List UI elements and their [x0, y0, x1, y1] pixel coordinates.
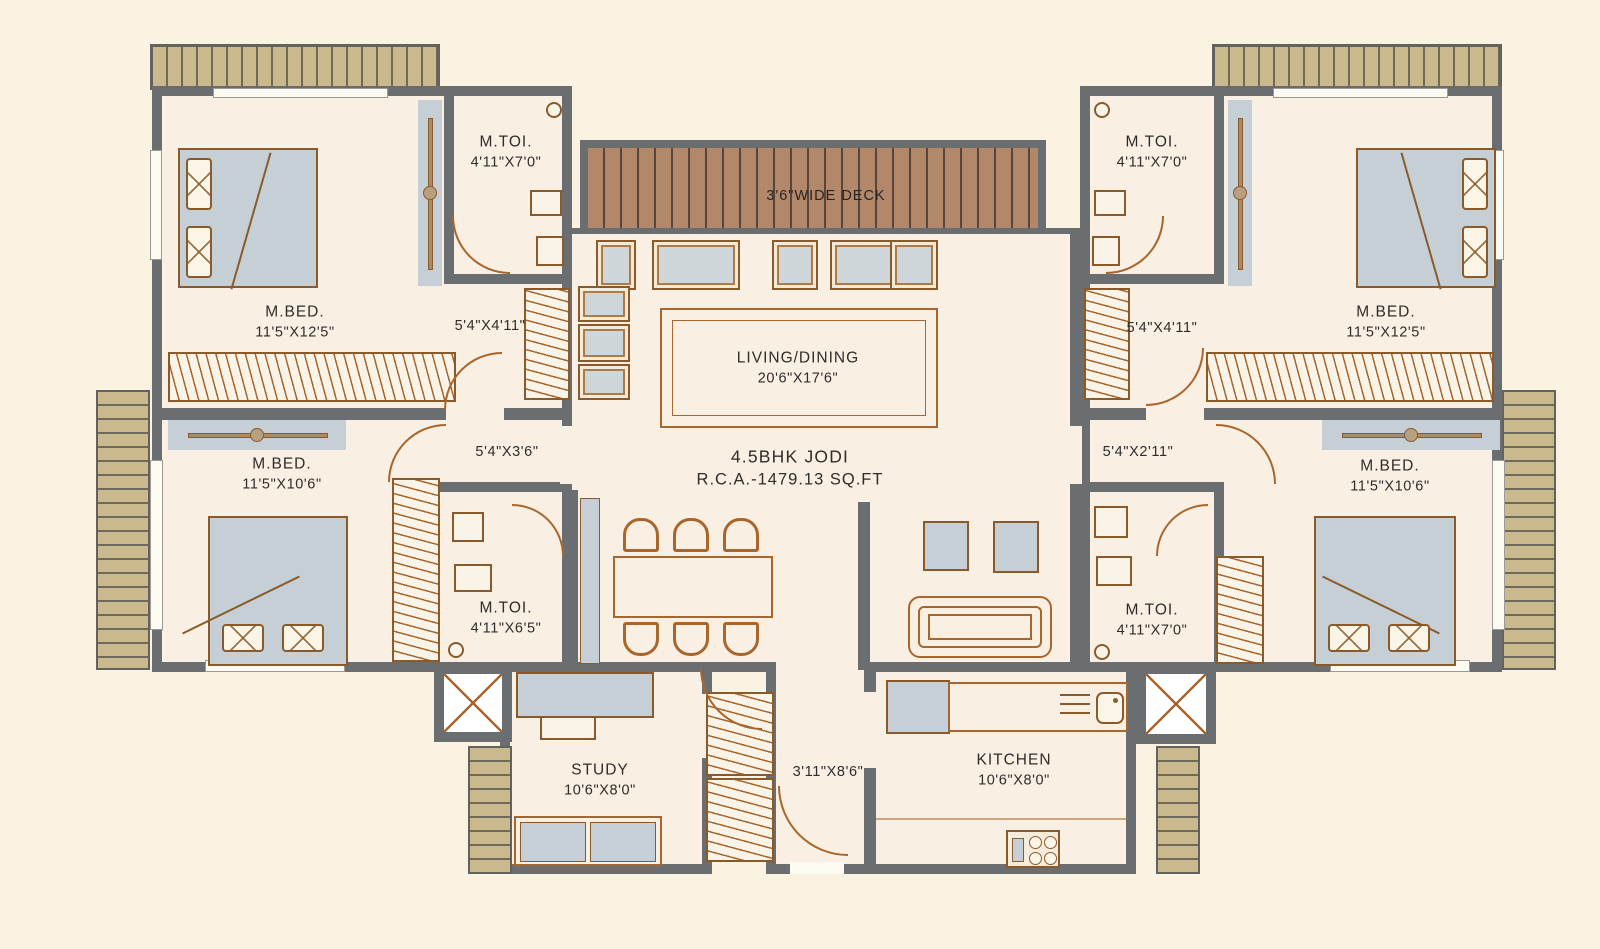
kitchen-fridge [886, 680, 950, 734]
sliding-door-knob [1233, 186, 1247, 200]
wardrobe-top-right [1206, 352, 1494, 402]
kitchen-sink [1096, 692, 1124, 724]
tv-cabinet-panel [578, 364, 630, 400]
label-foyer: 3'11"X8'6" [793, 762, 864, 782]
main-door-threshold [790, 862, 844, 874]
kitchen-stove [1006, 830, 1060, 868]
dining-table [613, 556, 773, 618]
study-desk [516, 672, 654, 718]
label-master-toilet-top-right: M.TOI. 4'11"X7'0" [1117, 131, 1188, 172]
sliding-door-top-right [1228, 100, 1252, 286]
pillow [282, 624, 324, 652]
stove-burner [1029, 836, 1042, 849]
interior-wall-left [566, 490, 578, 670]
study-notepad [540, 716, 596, 740]
stove-panel [1012, 838, 1024, 862]
label-passage-mid-right: 5'4"X2'11" [1103, 442, 1174, 462]
shaft-right [1136, 664, 1216, 744]
stove-burner [1044, 852, 1057, 865]
dining-chair [623, 622, 659, 656]
label-master-bed-top-right: M.BED. 11'5"X12'5" [1346, 301, 1425, 342]
closet-top-left [524, 288, 570, 400]
dining-chair [673, 518, 709, 552]
coffee-table [908, 596, 1052, 658]
dining-chair [623, 518, 659, 552]
plan-title: 4.5BHK JODI R.C.A.-1479.13 SQ.FT [697, 445, 884, 492]
label-master-bed-mid-right: M.BED. 11'5"X10'6" [1350, 455, 1429, 496]
balcony-top-right [1212, 44, 1502, 90]
glazed-panel [772, 240, 818, 290]
stove-burner [1029, 852, 1042, 865]
study-sofa-cushion [590, 822, 656, 862]
label-study: STUDY 10'6"X8'0" [564, 759, 636, 800]
window-knob [250, 428, 264, 442]
dining-chair [723, 518, 759, 552]
ledge-bottom-right [1156, 746, 1200, 874]
interior-wall-right [858, 502, 870, 670]
pillow [1328, 624, 1370, 652]
study-sofa-cushion [520, 822, 586, 862]
drain-mid-right [1094, 644, 1110, 660]
drainboard-lines [1060, 694, 1090, 721]
ottoman [923, 521, 969, 571]
window-unit-mid-left [168, 420, 346, 450]
deck-label: 3'6"WIDE DECK [766, 186, 885, 206]
label-passage-top-left: 5'4"X4'11" [455, 316, 526, 336]
pillow [186, 158, 212, 210]
basin-mid-left [454, 564, 492, 592]
wardrobe-mid-right [1216, 556, 1264, 664]
pillow [186, 226, 212, 278]
pillow [222, 624, 264, 652]
pillow [1388, 624, 1430, 652]
stove-burner [1044, 836, 1057, 849]
basin-top-left [546, 102, 562, 118]
window-bed-top-left-side [150, 150, 162, 260]
tv-cabinet-panel [578, 286, 630, 322]
ottoman [993, 521, 1039, 573]
label-kitchen: KITCHEN 10'6"X8'0" [976, 749, 1051, 790]
tv-cabinet-panel [578, 324, 630, 362]
sliding-door-top-left [418, 100, 442, 286]
label-passage-top-right: 5'4"X4'11" [1127, 318, 1198, 338]
label-passage-mid-left: 5'4"X3'6" [475, 442, 538, 462]
glazed-panel [596, 240, 636, 290]
door-opening-bed-top-right [1146, 408, 1204, 420]
coffee-table-top [928, 614, 1032, 640]
window-unit-mid-right [1322, 420, 1500, 450]
ledge-bottom-left [468, 746, 512, 874]
pillow [1462, 158, 1488, 210]
glazed-panel [652, 240, 740, 290]
basin-mid-right [1096, 556, 1132, 586]
sink-tap [1113, 698, 1118, 703]
label-master-bed-top-left: M.BED. 11'5"X12'5" [255, 301, 334, 342]
label-master-bed-mid-left: M.BED. 11'5"X10'6" [242, 453, 321, 494]
floor-plan: 3'6"WIDE DECK M.BED. 11'5"X12'5" M.TOI. … [0, 0, 1600, 949]
shower-top-left [536, 236, 564, 266]
drain-mid-left [448, 642, 464, 658]
ledge-right [1502, 390, 1556, 670]
glass-partition-left [580, 498, 600, 664]
foyer-wardrobe-lower [706, 778, 774, 862]
window-bed-mid-right-side [1492, 460, 1505, 630]
wardrobe-top-left [168, 352, 456, 402]
door-opening-passage-right [1066, 426, 1082, 484]
label-master-toilet-mid-right: M.TOI. 4'11"X7'0" [1117, 599, 1188, 640]
label-master-toilet-top-left: M.TOI. 4'11"X7'0" [471, 131, 542, 172]
wc-top-right [1094, 190, 1126, 216]
dining-chair [723, 622, 759, 656]
door-opening-kitchen [862, 692, 876, 768]
ledge-left [96, 390, 150, 670]
label-living-dining: LIVING/DINING 20'6"X17'6" [737, 347, 859, 388]
window-knob [1404, 428, 1418, 442]
counter-edge-line [876, 818, 1128, 820]
wc-top-left [530, 190, 562, 216]
balcony-top-left [150, 44, 440, 90]
label-master-toilet-mid-left: M.TOI. 4'11"X6'5" [471, 597, 542, 638]
sliding-door-knob [423, 186, 437, 200]
pillow [1462, 226, 1488, 278]
wardrobe-mid-left [392, 478, 440, 662]
glazed-panel [890, 240, 938, 290]
door-opening-foyer [778, 660, 862, 674]
closet-top-right [1084, 288, 1130, 400]
basin-top-right [1094, 102, 1110, 118]
wc-mid-right [1094, 506, 1128, 538]
wc-mid-left [452, 512, 484, 542]
shaft-left [434, 664, 512, 742]
window-bed-top-right [1273, 88, 1448, 98]
door-opening-passage-left [560, 426, 574, 484]
dining-chair [673, 622, 709, 656]
window-bed-top-left [213, 88, 388, 98]
window-bed-mid-left-side [150, 460, 163, 630]
